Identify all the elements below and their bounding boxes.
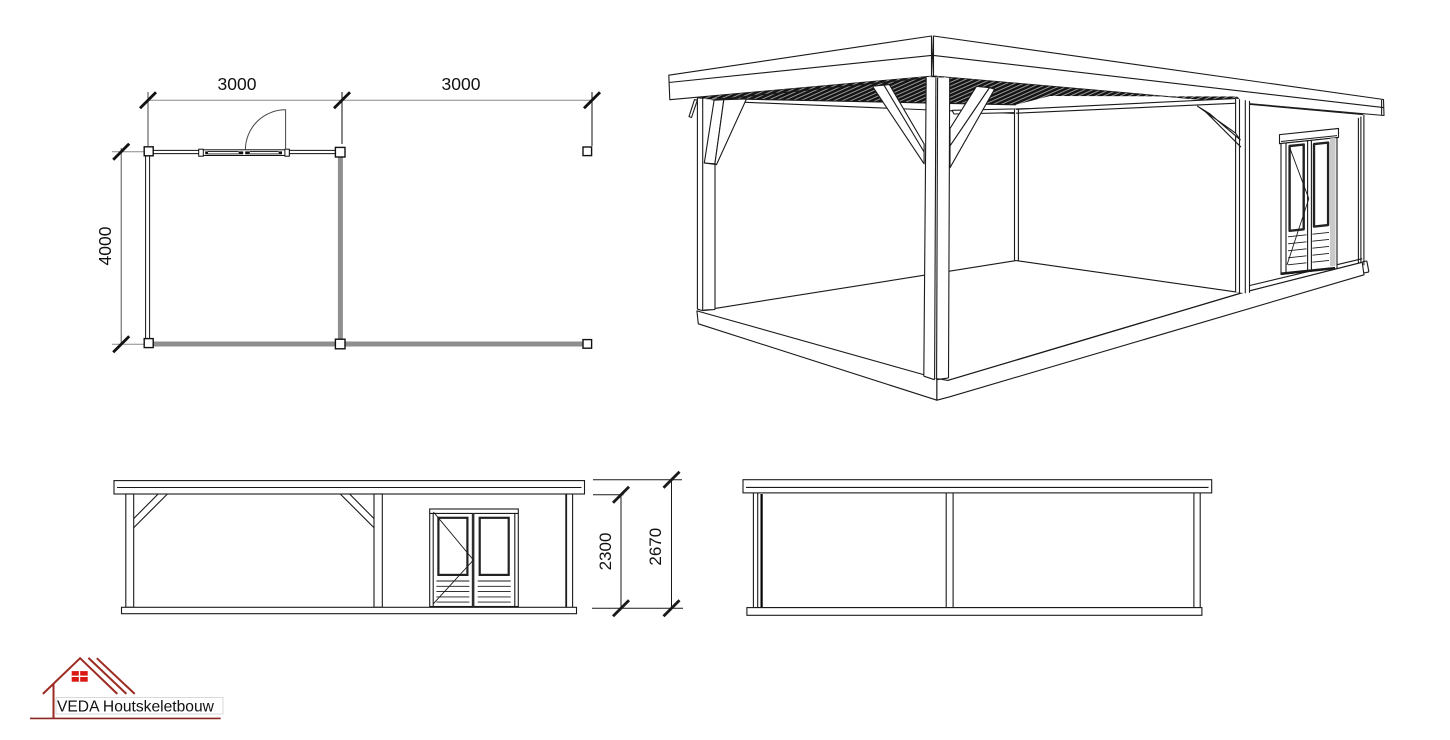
- svg-text:2670: 2670: [646, 528, 665, 566]
- svg-text:3000: 3000: [218, 74, 257, 94]
- svg-text:VEDA Houtskeletbouw: VEDA Houtskeletbouw: [57, 699, 215, 716]
- svg-text:4000: 4000: [95, 226, 115, 265]
- svg-text:3000: 3000: [442, 74, 481, 94]
- svg-text:2300: 2300: [596, 533, 615, 571]
